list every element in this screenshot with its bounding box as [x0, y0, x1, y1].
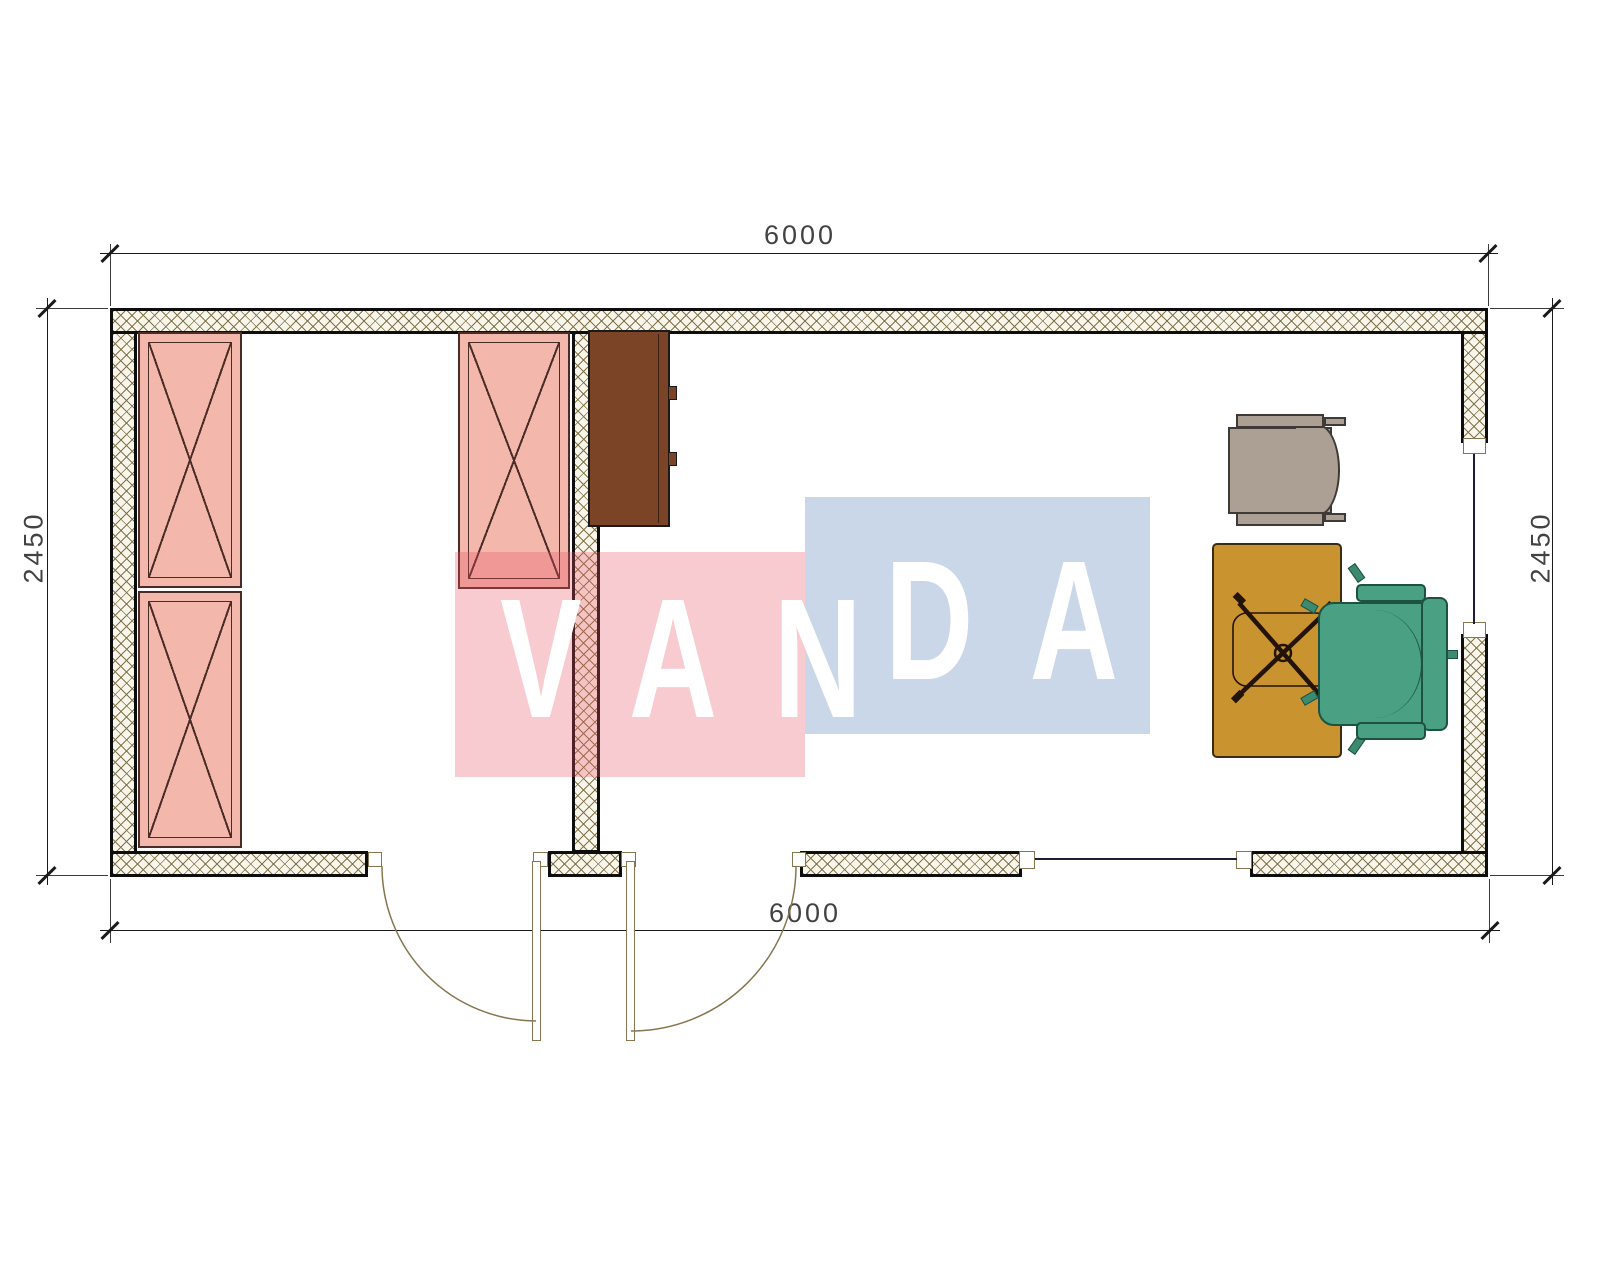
wardrobe-cabinet-1 — [138, 332, 242, 588]
office-chair-armrest-bottom — [1356, 722, 1426, 740]
floor-plan-canvas: 6000 6000 2450 2450 — [0, 0, 1600, 1280]
office-chair-backrest — [1421, 597, 1448, 731]
right-dimension-label: 2450 — [1526, 488, 1557, 608]
top-dimension-label: 6000 — [740, 220, 860, 251]
door-swing-arcs — [370, 860, 810, 1050]
armchair-leg — [1324, 417, 1346, 426]
watermark-text-van: VAN — [500, 574, 918, 744]
window-right-glass — [1473, 454, 1475, 624]
door-swing-arc-left — [382, 866, 536, 1021]
armchair-side-top — [1236, 414, 1324, 428]
exterior-wall-right-lower — [1461, 634, 1488, 877]
wardrobe-cabinet-3 — [458, 332, 570, 589]
window-bottom-glass — [1035, 858, 1237, 860]
exterior-wall-bottom-right — [1250, 851, 1488, 877]
armchair-side-bottom — [1236, 512, 1324, 526]
cabinet-cross-mark — [148, 342, 232, 578]
office-chair-seat-curve — [1326, 610, 1422, 718]
wardrobe-cabinet-2 — [138, 591, 242, 848]
top-dimension-line — [100, 253, 1498, 254]
exterior-wall-bottom-left — [110, 851, 368, 877]
window-right-sill-bottom — [1463, 622, 1486, 638]
window-bottom-sill-right — [1236, 851, 1252, 869]
exterior-wall-left — [110, 331, 137, 877]
armchair-back — [1296, 424, 1340, 516]
chair-base-arm — [1238, 610, 1328, 696]
watermark-text-da: DA — [885, 536, 1174, 706]
door-swing-arc-right — [631, 866, 796, 1031]
cabinet-cross-mark — [148, 601, 232, 838]
office-chair-armrest-top — [1356, 584, 1426, 602]
exterior-wall-top — [110, 308, 1488, 334]
window-bottom-sill-left — [1019, 851, 1035, 869]
armchair-leg — [1324, 513, 1346, 522]
office-chair-leg — [1348, 563, 1366, 583]
window-right-sill-top — [1463, 438, 1486, 454]
cabinet-cross-mark — [468, 342, 560, 579]
chair-caster — [1233, 592, 1246, 605]
sideboard-hinge-notch — [668, 386, 677, 400]
bottom-dimension-extension-left — [110, 879, 111, 943]
exterior-wall-right-upper — [1461, 331, 1488, 443]
sideboard-hinge-notch — [668, 452, 677, 466]
left-dimension-label: 2450 — [19, 488, 50, 608]
exterior-wall-bottom-middle — [800, 851, 1022, 877]
sideboard-divider — [658, 334, 659, 523]
